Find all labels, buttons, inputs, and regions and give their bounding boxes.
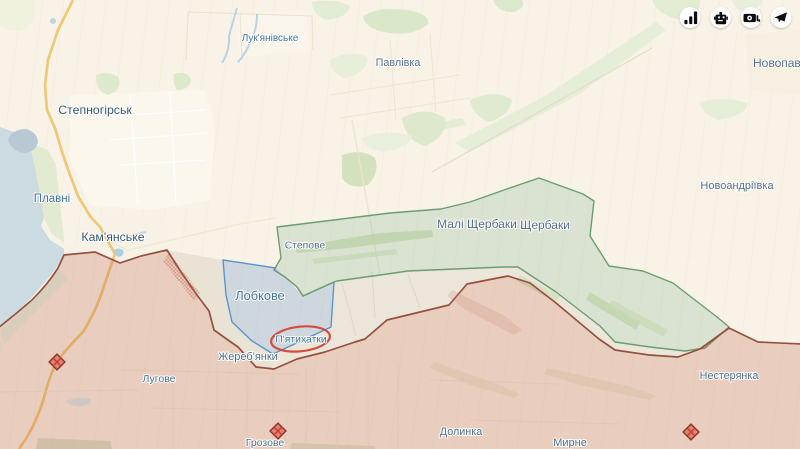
svg-text:Щербаки: Щербаки xyxy=(520,218,570,232)
svg-text:Грозове: Грозове xyxy=(246,437,285,449)
svg-text:П'ятихатки: П'ятихатки xyxy=(275,335,327,346)
svg-text:Новопавлівка: Новопавлівка xyxy=(753,56,800,70)
svg-text:Плавні: Плавні xyxy=(34,193,70,205)
svg-text:Новоандріївка: Новоандріївка xyxy=(700,180,774,192)
svg-text:Долинка: Долинка xyxy=(440,426,482,438)
svg-text:Лобкове: Лобкове xyxy=(235,288,284,303)
svg-text:Степногірськ: Степногірськ xyxy=(58,103,132,117)
svg-text:Мирне: Мирне xyxy=(553,437,587,449)
svg-text:Степове: Степове xyxy=(285,241,326,252)
svg-text:Лугове: Лугове xyxy=(143,373,176,385)
svg-text:Нестерянка: Нестерянка xyxy=(700,370,759,382)
svg-text:Кам'янське: Кам'янське xyxy=(81,230,144,244)
svg-text:Жереб'янки: Жереб'янки xyxy=(218,351,278,363)
svg-text:Павлівка: Павлівка xyxy=(376,57,421,69)
svg-text:Лук'янівське: Лук'янівське xyxy=(242,33,299,44)
svg-text:Малі Щербаки: Малі Щербаки xyxy=(437,217,517,231)
